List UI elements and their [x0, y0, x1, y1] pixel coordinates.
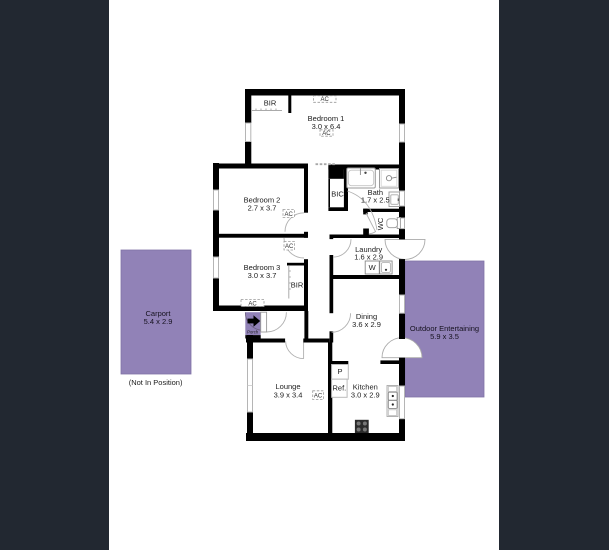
- svg-text:Porch: Porch: [247, 330, 259, 335]
- svg-text:3.0 x 3.7: 3.0 x 3.7: [248, 271, 277, 280]
- svg-text:BIR: BIR: [264, 99, 277, 108]
- svg-text:P: P: [337, 367, 342, 376]
- svg-text:BIC: BIC: [331, 190, 344, 199]
- svg-text:AC: AC: [321, 97, 330, 103]
- svg-text:AC: AC: [314, 394, 323, 400]
- svg-text:3.0 x 6.4: 3.0 x 6.4: [312, 122, 341, 131]
- svg-text:1.6 x 2.9: 1.6 x 2.9: [354, 252, 383, 261]
- svg-text:(Not In Position): (Not In Position): [129, 378, 183, 387]
- svg-text:1.7 x 2.5: 1.7 x 2.5: [361, 196, 390, 205]
- svg-text:AC: AC: [285, 212, 294, 218]
- svg-text:3.6 x 2.9: 3.6 x 2.9: [352, 320, 381, 329]
- svg-text:W: W: [369, 263, 377, 272]
- svg-text:AC: AC: [248, 301, 257, 307]
- svg-text:2.7 x 3.7: 2.7 x 3.7: [248, 203, 277, 212]
- svg-text:Ref.: Ref.: [333, 383, 347, 392]
- svg-text:5.4 x 2.9: 5.4 x 2.9: [144, 317, 173, 326]
- svg-text:AC: AC: [322, 131, 331, 137]
- svg-text:WC: WC: [376, 217, 385, 230]
- svg-text:5.9 x 3.5: 5.9 x 3.5: [430, 332, 459, 341]
- svg-text:AC: AC: [285, 244, 294, 250]
- svg-text:3.9 x 3.4: 3.9 x 3.4: [274, 391, 303, 400]
- svg-text:BIR: BIR: [291, 281, 304, 290]
- svg-text:3.0 x 2.9: 3.0 x 2.9: [351, 391, 380, 400]
